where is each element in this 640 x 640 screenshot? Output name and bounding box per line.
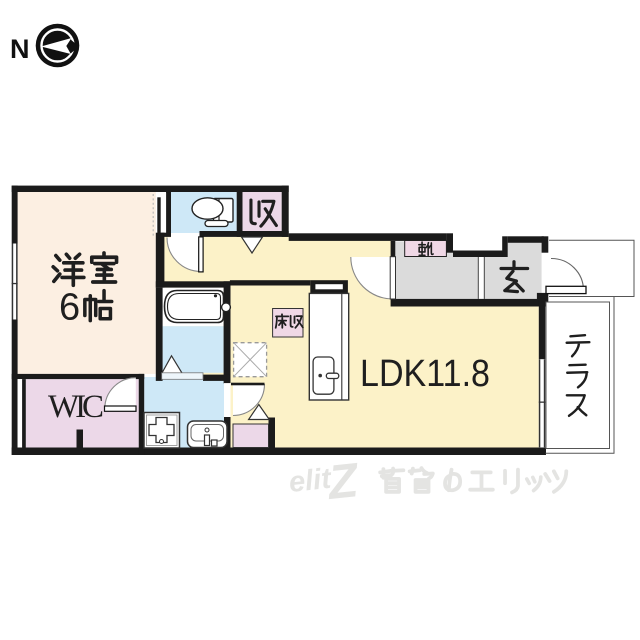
svg-text:6: 6 bbox=[59, 287, 80, 329]
svg-text:N: N bbox=[10, 34, 30, 64]
svg-text:LDK11.8: LDK11.8 bbox=[360, 353, 490, 395]
svg-text:WIC: WIC bbox=[48, 389, 104, 425]
